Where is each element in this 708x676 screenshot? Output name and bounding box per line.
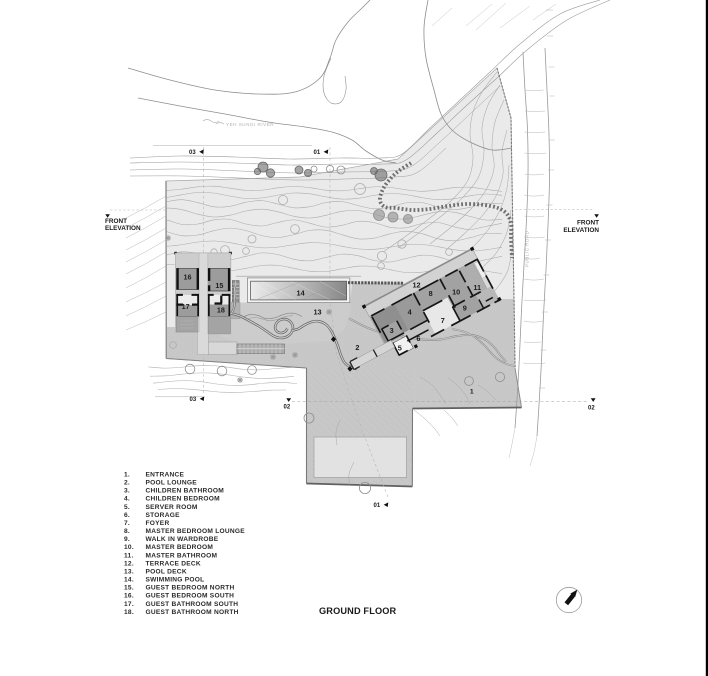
svg-text:02: 02 bbox=[588, 406, 595, 412]
svg-text:6: 6 bbox=[416, 334, 420, 343]
svg-text:7.: 7. bbox=[124, 520, 130, 527]
svg-text:MASTER BEDROOM: MASTER BEDROOM bbox=[146, 544, 214, 551]
svg-text:14.: 14. bbox=[124, 577, 134, 584]
svg-text:4.: 4. bbox=[124, 496, 130, 503]
svg-text:13.: 13. bbox=[124, 569, 134, 576]
svg-text:ENTRANCE: ENTRANCE bbox=[146, 472, 185, 479]
svg-text:17: 17 bbox=[182, 302, 190, 311]
svg-text:11.: 11. bbox=[124, 552, 134, 559]
svg-text:8: 8 bbox=[429, 289, 433, 298]
svg-text:5: 5 bbox=[398, 343, 402, 352]
svg-text:GUEST BEDROOM NORTH: GUEST BEDROOM NORTH bbox=[146, 585, 235, 592]
svg-text:PUBLIC ROAD: PUBLIC ROAD bbox=[525, 231, 530, 267]
svg-text:01: 01 bbox=[314, 150, 321, 156]
svg-text:GUEST BATHROOM NORTH: GUEST BATHROOM NORTH bbox=[146, 609, 239, 616]
svg-text:15.: 15. bbox=[124, 585, 134, 592]
svg-text:WALK IN WARDROBE: WALK IN WARDROBE bbox=[146, 536, 219, 543]
svg-text:16.: 16. bbox=[124, 593, 134, 600]
svg-text:14: 14 bbox=[297, 288, 306, 297]
svg-text:FRONT: FRONT bbox=[105, 218, 127, 225]
svg-text:5.: 5. bbox=[124, 504, 130, 511]
svg-text:ELEVATION: ELEVATION bbox=[563, 227, 599, 234]
svg-text:16: 16 bbox=[184, 273, 192, 282]
svg-text:YEH SUNGI RIVER: YEH SUNGI RIVER bbox=[226, 122, 274, 127]
svg-text:9: 9 bbox=[463, 303, 467, 312]
svg-text:GUEST BATHROOM SOUTH: GUEST BATHROOM SOUTH bbox=[146, 601, 239, 608]
svg-text:POOL DECK: POOL DECK bbox=[146, 569, 187, 576]
svg-text:CHILDREN BATHROOM: CHILDREN BATHROOM bbox=[146, 488, 225, 495]
svg-text:SERVER ROOM: SERVER ROOM bbox=[146, 504, 198, 511]
svg-text:MASTER BEDROOM LOUNGE: MASTER BEDROOM LOUNGE bbox=[146, 528, 246, 535]
svg-text:10: 10 bbox=[452, 288, 460, 297]
svg-text:ELEVATION: ELEVATION bbox=[105, 225, 141, 232]
svg-text:03: 03 bbox=[189, 150, 196, 156]
svg-text:6.: 6. bbox=[124, 512, 130, 519]
svg-text:17.: 17. bbox=[124, 601, 134, 608]
svg-text:3.: 3. bbox=[124, 488, 130, 495]
svg-text:MASTER BATHROOM: MASTER BATHROOM bbox=[146, 552, 218, 559]
svg-text:CHILDREN BEDROOM: CHILDREN BEDROOM bbox=[146, 496, 221, 503]
svg-text:9.: 9. bbox=[124, 536, 130, 543]
svg-text:FOYER: FOYER bbox=[146, 520, 170, 527]
svg-text:7: 7 bbox=[441, 316, 445, 325]
svg-text:15: 15 bbox=[215, 281, 223, 290]
svg-text:FRONT: FRONT bbox=[577, 220, 599, 227]
svg-text:TERRACE DECK: TERRACE DECK bbox=[146, 560, 201, 567]
svg-text:18.: 18. bbox=[124, 609, 134, 616]
svg-text:3: 3 bbox=[390, 326, 394, 335]
svg-text:12.: 12. bbox=[124, 560, 134, 567]
svg-text:03: 03 bbox=[190, 397, 197, 403]
svg-text:10.: 10. bbox=[124, 544, 134, 551]
svg-text:GROUND FLOOR: GROUND FLOOR bbox=[319, 606, 397, 616]
svg-text:1.: 1. bbox=[124, 472, 130, 479]
svg-text:02: 02 bbox=[284, 405, 291, 411]
svg-text:18: 18 bbox=[217, 306, 225, 315]
svg-text:2: 2 bbox=[355, 343, 359, 352]
svg-text:SWIMMING POOL: SWIMMING POOL bbox=[146, 577, 205, 584]
svg-text:GUEST BEDROOM SOUTH: GUEST BEDROOM SOUTH bbox=[146, 593, 235, 600]
svg-text:2.: 2. bbox=[124, 480, 130, 487]
svg-text:STORAGE: STORAGE bbox=[146, 512, 181, 519]
svg-text:8.: 8. bbox=[124, 528, 130, 535]
svg-text:13: 13 bbox=[313, 308, 321, 317]
svg-text:12: 12 bbox=[412, 280, 420, 289]
svg-text:1: 1 bbox=[470, 388, 474, 395]
svg-text:POOL LOUNGE: POOL LOUNGE bbox=[146, 480, 198, 487]
svg-text:01: 01 bbox=[374, 503, 381, 509]
svg-text:11: 11 bbox=[473, 283, 481, 292]
